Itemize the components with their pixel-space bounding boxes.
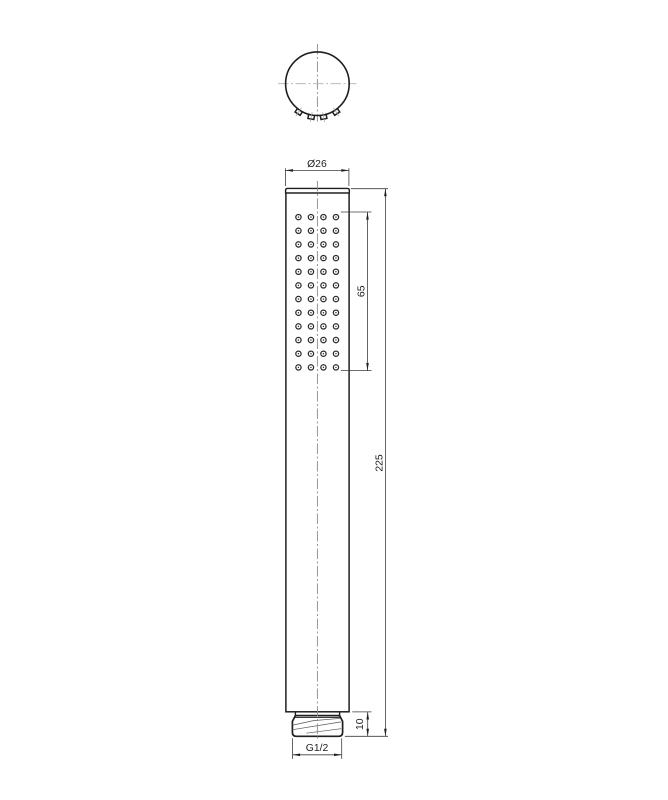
svg-text:65: 65 [356, 285, 367, 297]
svg-text:G1/2: G1/2 [306, 743, 329, 754]
svg-text:225: 225 [375, 454, 386, 472]
svg-text:Ø26: Ø26 [307, 159, 327, 170]
svg-text:10: 10 [355, 718, 366, 730]
